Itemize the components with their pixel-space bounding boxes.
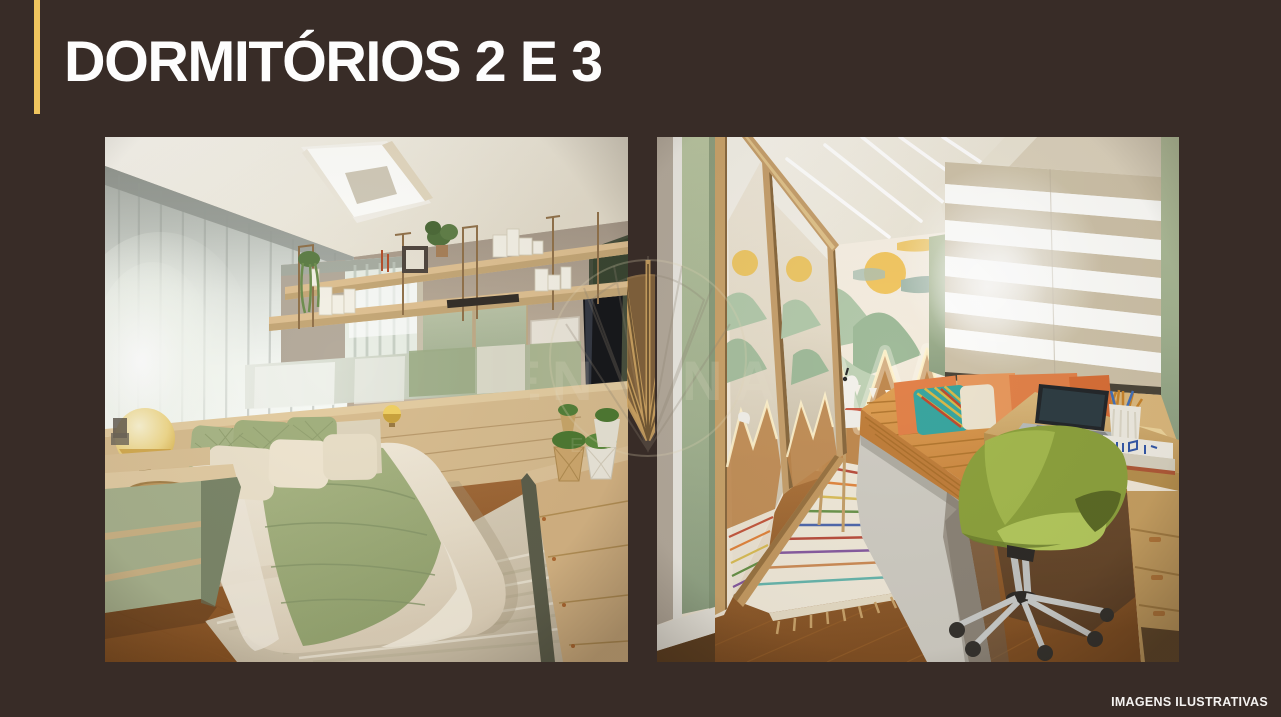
svg-text:N: N — [682, 349, 722, 412]
svg-text:E I: E I — [570, 435, 618, 457]
svg-text:A: A — [734, 349, 774, 412]
svg-text:N: N — [552, 349, 592, 412]
svg-text:E: E — [530, 349, 541, 412]
